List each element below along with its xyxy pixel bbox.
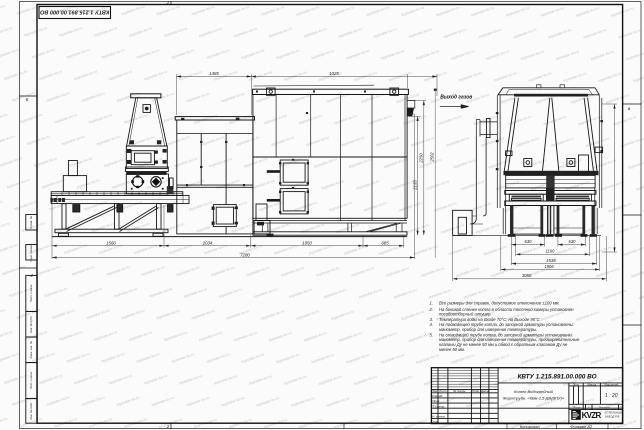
svg-text:Все размеры для справок, допус: Все размеры для справок, допустимое откл… — [439, 300, 560, 305]
svg-text:КВТУ 1.215.891.00.000 ВО: КВТУ 1.215.891.00.000 ВО — [517, 373, 596, 380]
svg-text:2135: 2135 — [412, 180, 417, 191]
svg-text:1906: 1906 — [544, 264, 554, 269]
svg-text:1 : 20: 1 : 20 — [605, 393, 618, 399]
svg-text:КВТУ 1.215.891.00.000 ВО: КВТУ 1.215.891.00.000 ВО — [39, 8, 109, 14]
svg-text:Масса: Масса — [587, 382, 596, 386]
svg-text:630: 630 — [525, 239, 533, 244]
svg-text:1025: 1025 — [329, 71, 339, 76]
svg-text:1.: 1. — [430, 300, 434, 305]
svg-text:7280: 7280 — [240, 252, 250, 257]
svg-text:Выход газов: Выход газов — [440, 94, 472, 100]
svg-text:Т. контр.: Т. контр. — [432, 404, 445, 408]
svg-text:менее 50 мм.: менее 50 мм. — [439, 347, 465, 352]
svg-text:Котел Водогрейный: Котел Водогрейный — [514, 389, 553, 394]
svg-text:KVZR: KVZR — [582, 411, 602, 420]
svg-text:Утв.: Утв. — [432, 420, 439, 424]
svg-text:пособоотборный штуцер.: пособоотборный штуцер. — [439, 312, 492, 317]
svg-text:2034: 2034 — [202, 241, 213, 246]
svg-text:Листов: Листов — [598, 406, 610, 410]
svg-text:685: 685 — [381, 241, 389, 246]
svg-text:Инв. № дубл.: Инв. № дубл. — [29, 315, 33, 332]
svg-text:№ докум.: № докум. — [453, 389, 466, 393]
svg-text:2: 2 — [619, 406, 622, 410]
svg-text:Справ. №: Справ. № — [29, 216, 33, 229]
svg-text:Лит.: Лит. — [571, 382, 579, 386]
svg-text:1485: 1485 — [209, 71, 219, 76]
svg-text:2: 2 — [166, 0, 170, 5]
svg-text:Изм.: Изм. — [431, 389, 438, 393]
svg-text:1950: 1950 — [302, 241, 312, 246]
svg-text:4.: 4. — [430, 322, 434, 327]
svg-text:Перв. примен.: Перв. примен. — [29, 243, 33, 262]
svg-text:5.: 5. — [430, 333, 434, 338]
svg-text:1560: 1560 — [106, 241, 116, 246]
svg-text:Формат А2: Формат А2 — [570, 424, 593, 429]
svg-text:Подп. и дата: Подп. и дата — [29, 371, 33, 389]
svg-text:1160: 1160 — [545, 249, 555, 254]
svg-text:2: 2 — [166, 424, 170, 429]
svg-text:2.: 2. — [429, 307, 434, 312]
svg-text:Подп. и дата: Подп. и дата — [29, 284, 33, 302]
svg-text:2250: 2250 — [419, 153, 424, 164]
svg-text:ЗАВОД РФ: ЗАВОД РФ — [605, 415, 620, 419]
svg-text:Разраб.: Разраб. — [432, 394, 443, 398]
svg-text:2502: 2502 — [430, 152, 435, 163]
svg-text:Дата: Дата — [480, 389, 489, 393]
svg-text:630: 630 — [569, 239, 577, 244]
svg-text:Пров.: Пров. — [432, 399, 440, 403]
svg-text:Лист: Лист — [438, 389, 447, 393]
svg-text:Н. контр.: Н. контр. — [432, 415, 446, 419]
svg-text:Подп.: Подп. — [472, 389, 480, 393]
svg-text:Копировал: Копировал — [520, 424, 541, 429]
svg-text:3050: 3050 — [522, 273, 532, 278]
svg-text:Жаротрубн. «КВм-2,5-ДВ(ВПУ)»: Жаротрубн. «КВм-2,5-ДВ(ВПУ)» — [502, 396, 565, 401]
svg-text:1538: 1538 — [546, 258, 556, 263]
svg-text:манометр, прибор для измерения: манометр, прибор для измерения температу… — [439, 327, 537, 332]
svg-text:Масштаб: Масштаб — [604, 382, 618, 386]
svg-text:Взам. инв. №: Взам. инв. № — [29, 341, 33, 358]
svg-text:Лист: Лист — [572, 406, 581, 410]
svg-text:Инв. № подл.: Инв. № подл. — [29, 402, 33, 420]
